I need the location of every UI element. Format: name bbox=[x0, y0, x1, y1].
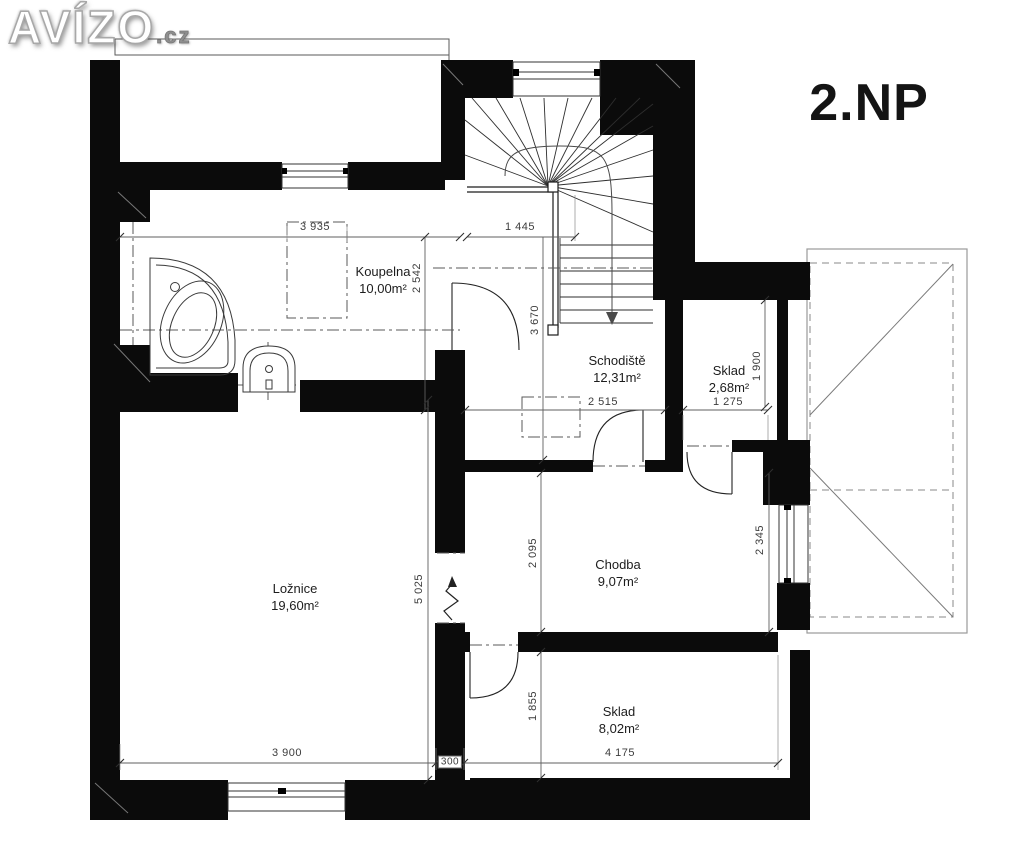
dim-stairhall-width: 2 515 bbox=[588, 396, 618, 408]
door-bathroom bbox=[452, 283, 519, 350]
avizo-logo-brand: AVÍZO bbox=[8, 1, 155, 53]
wall-niche-arrow bbox=[444, 576, 458, 620]
dim-storage2-height: 1 855 bbox=[527, 691, 539, 721]
avizo-logo-tld: .cz bbox=[156, 23, 191, 48]
door-stair-hall bbox=[593, 410, 643, 462]
room-area: 8,02m² bbox=[599, 721, 639, 738]
room-label-loznice: Ložnice 19,60m² bbox=[271, 581, 319, 615]
dim-wall-thickness: 300 bbox=[438, 756, 462, 769]
avizo-logo: AVÍZO.cz bbox=[8, 0, 192, 54]
dim-bedroom-width: 3 900 bbox=[272, 747, 302, 759]
room-label-schodiste: Schodiště 12,31m² bbox=[588, 353, 645, 387]
room-name: Koupelna bbox=[356, 264, 411, 281]
dim-hall-height-left: 2 095 bbox=[527, 538, 539, 568]
dim-storage-width: 1 275 bbox=[713, 396, 743, 408]
floor-plan-page: AVÍZO.cz 2.NP Koupelna 10,00m² Schodiště… bbox=[0, 0, 1024, 855]
sink bbox=[243, 346, 295, 392]
window-bedroom bbox=[228, 783, 345, 811]
room-name: Chodba bbox=[595, 557, 641, 574]
room-label-sklad-maly: Sklad 2,68m² bbox=[709, 363, 749, 397]
room-label-koupelna: Koupelna 10,00m² bbox=[356, 264, 411, 298]
room-label-chodba: Chodba 9,07m² bbox=[595, 557, 641, 591]
dim-bath-height: 2 542 bbox=[411, 263, 423, 293]
dim-storage2-width: 4 175 bbox=[605, 747, 635, 759]
room-area: 2,68m² bbox=[709, 380, 749, 397]
window-hall-right bbox=[779, 505, 808, 583]
dim-hall-height-right: 2 345 bbox=[754, 525, 766, 555]
bathtub-tap-icon bbox=[171, 283, 180, 292]
floor-title: 2.NP bbox=[809, 73, 929, 133]
room-area: 9,07m² bbox=[595, 574, 641, 591]
dim-storage-height: 1 900 bbox=[751, 351, 763, 381]
room-name: Schodiště bbox=[588, 353, 645, 370]
stair-railing bbox=[467, 182, 558, 335]
door-storage-large bbox=[470, 652, 518, 698]
sink-tap-icon bbox=[266, 366, 273, 373]
dim-stair-width: 1 445 bbox=[505, 221, 535, 233]
dim-stairhall-height: 3 670 bbox=[529, 305, 541, 335]
bathtub bbox=[148, 258, 236, 375]
room-area: 10,00m² bbox=[356, 281, 411, 298]
roof-outline bbox=[807, 249, 967, 633]
walls bbox=[90, 60, 810, 820]
room-name: Sklad bbox=[599, 704, 639, 721]
room-area: 12,31m² bbox=[588, 370, 645, 387]
room-area: 19,60m² bbox=[271, 598, 319, 615]
room-name: Sklad bbox=[709, 363, 749, 380]
window-bathroom bbox=[282, 164, 348, 188]
room-name: Ložnice bbox=[271, 581, 319, 598]
window-stair-top bbox=[513, 62, 600, 96]
room-label-sklad-velky: Sklad 8,02m² bbox=[599, 704, 639, 738]
door-storage-small bbox=[687, 452, 732, 494]
dim-bath-width: 3 935 bbox=[300, 221, 330, 233]
dim-bedroom-height: 5 025 bbox=[413, 574, 425, 604]
